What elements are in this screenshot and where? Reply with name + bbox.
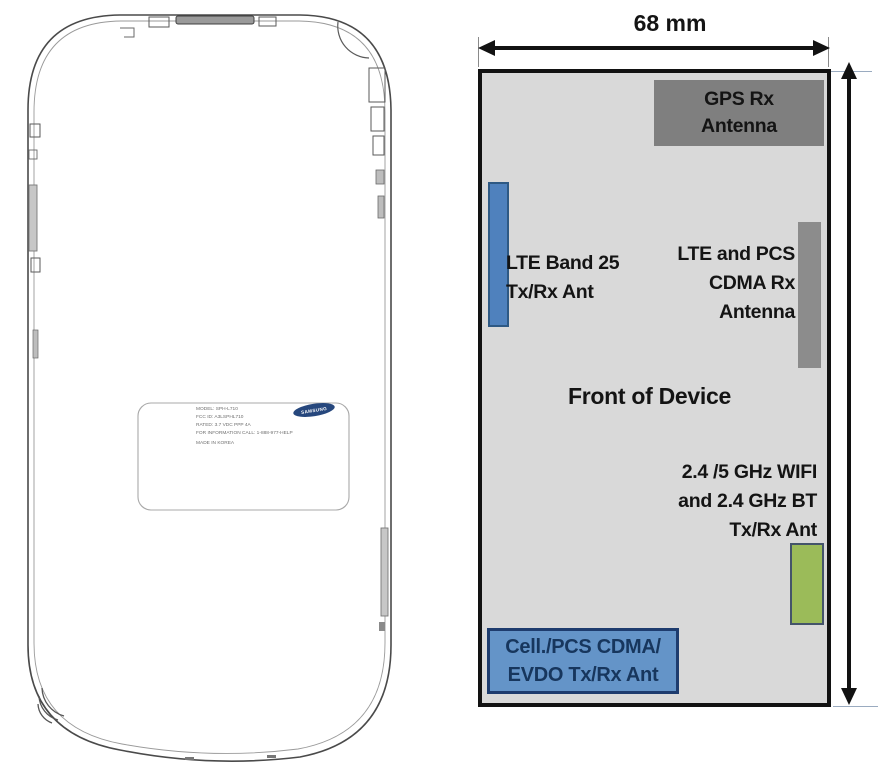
device-outline-panel: GPS Rx Antenna LTE Band 25 Tx/Rx Ant LTE…: [478, 69, 831, 707]
bottom-tick-1: [185, 757, 194, 760]
right-side-button: [381, 528, 388, 616]
label-line: MODEL: SPH-L710: [196, 406, 238, 412]
lte-pcs-cdma-rx-antenna-bar: [798, 222, 821, 368]
fcc-antenna-diagram-page: { "dimension": { "width_label": "68 mm" …: [0, 0, 880, 768]
gps-antenna-label-line: Antenna: [701, 113, 777, 140]
arrowhead-right-icon: [813, 40, 830, 56]
width-dimension-line: [492, 46, 817, 50]
lte-pcs-cdma-rx-label: LTE and PCS CDMA Rx Antenna: [677, 240, 795, 327]
label-line: MADE IN KOREA: [196, 440, 235, 446]
gps-antenna-block: GPS Rx Antenna: [654, 80, 824, 146]
label-line: FCC ID: A3LSPHL710: [196, 414, 244, 420]
lte-pcs-label-line: LTE and PCS: [677, 240, 795, 269]
wifi-bt-label-line: Tx/Rx Ant: [678, 516, 817, 545]
wifi-bt-label-line: and 2.4 GHz BT: [678, 487, 817, 516]
wifi-bt-label: 2.4 /5 GHz WIFI and 2.4 GHz BT Tx/Rx Ant: [678, 458, 817, 545]
arrowhead-left-icon: [478, 40, 495, 56]
wifi-bt-antenna-block: [790, 543, 824, 625]
regulatory-label: MODEL: SPH-L710 FCC ID: A3LSPHL710 RATED…: [138, 401, 349, 510]
lte-band25-label-line: LTE Band 25: [506, 249, 619, 278]
left-side-button: [29, 185, 37, 251]
arrowhead-down-icon: [841, 688, 857, 705]
cell-evdo-label-line: EVDO Tx/Rx Ant: [508, 661, 659, 689]
phone-back-drawing: MODEL: SPH-L710 FCC ID: A3LSPHL710 RATED…: [0, 0, 440, 768]
top-center-bar: [176, 16, 254, 24]
front-of-device-label: Front of Device: [482, 383, 817, 410]
lte-pcs-label-line: CDMA Rx: [677, 269, 795, 298]
cell-pcs-evdo-antenna-block: Cell./PCS CDMA/ EVDO Tx/Rx Ant: [487, 628, 679, 694]
phone-outline: [28, 15, 391, 761]
arrowhead-up-icon: [841, 62, 857, 79]
gps-antenna-label-line: GPS Rx: [704, 86, 774, 113]
left-detail-4: [33, 330, 38, 358]
right-detail-6: [379, 622, 385, 631]
right-detail-5: [378, 196, 384, 218]
label-line: FOR INFORMATION CALL: 1-888-977-HELP: [196, 430, 293, 436]
lte-band25-label: LTE Band 25 Tx/Rx Ant: [506, 249, 619, 307]
wifi-bt-label-line: 2.4 /5 GHz WIFI: [678, 458, 817, 487]
right-detail-4: [376, 170, 384, 184]
height-dimension-line: [847, 76, 851, 690]
lte-pcs-label-line: Antenna: [677, 298, 795, 327]
lte-band25-label-line: Tx/Rx Ant: [506, 278, 619, 307]
label-outline: [138, 403, 349, 510]
dim-extension-bottom-right: [833, 706, 878, 707]
bottom-tick-2: [267, 755, 276, 758]
cell-evdo-label-line: Cell./PCS CDMA/: [505, 633, 661, 661]
width-dimension-label: 68 mm: [495, 10, 845, 37]
label-line: RATED: 3.7 VDC PPP 4A: [196, 422, 252, 428]
